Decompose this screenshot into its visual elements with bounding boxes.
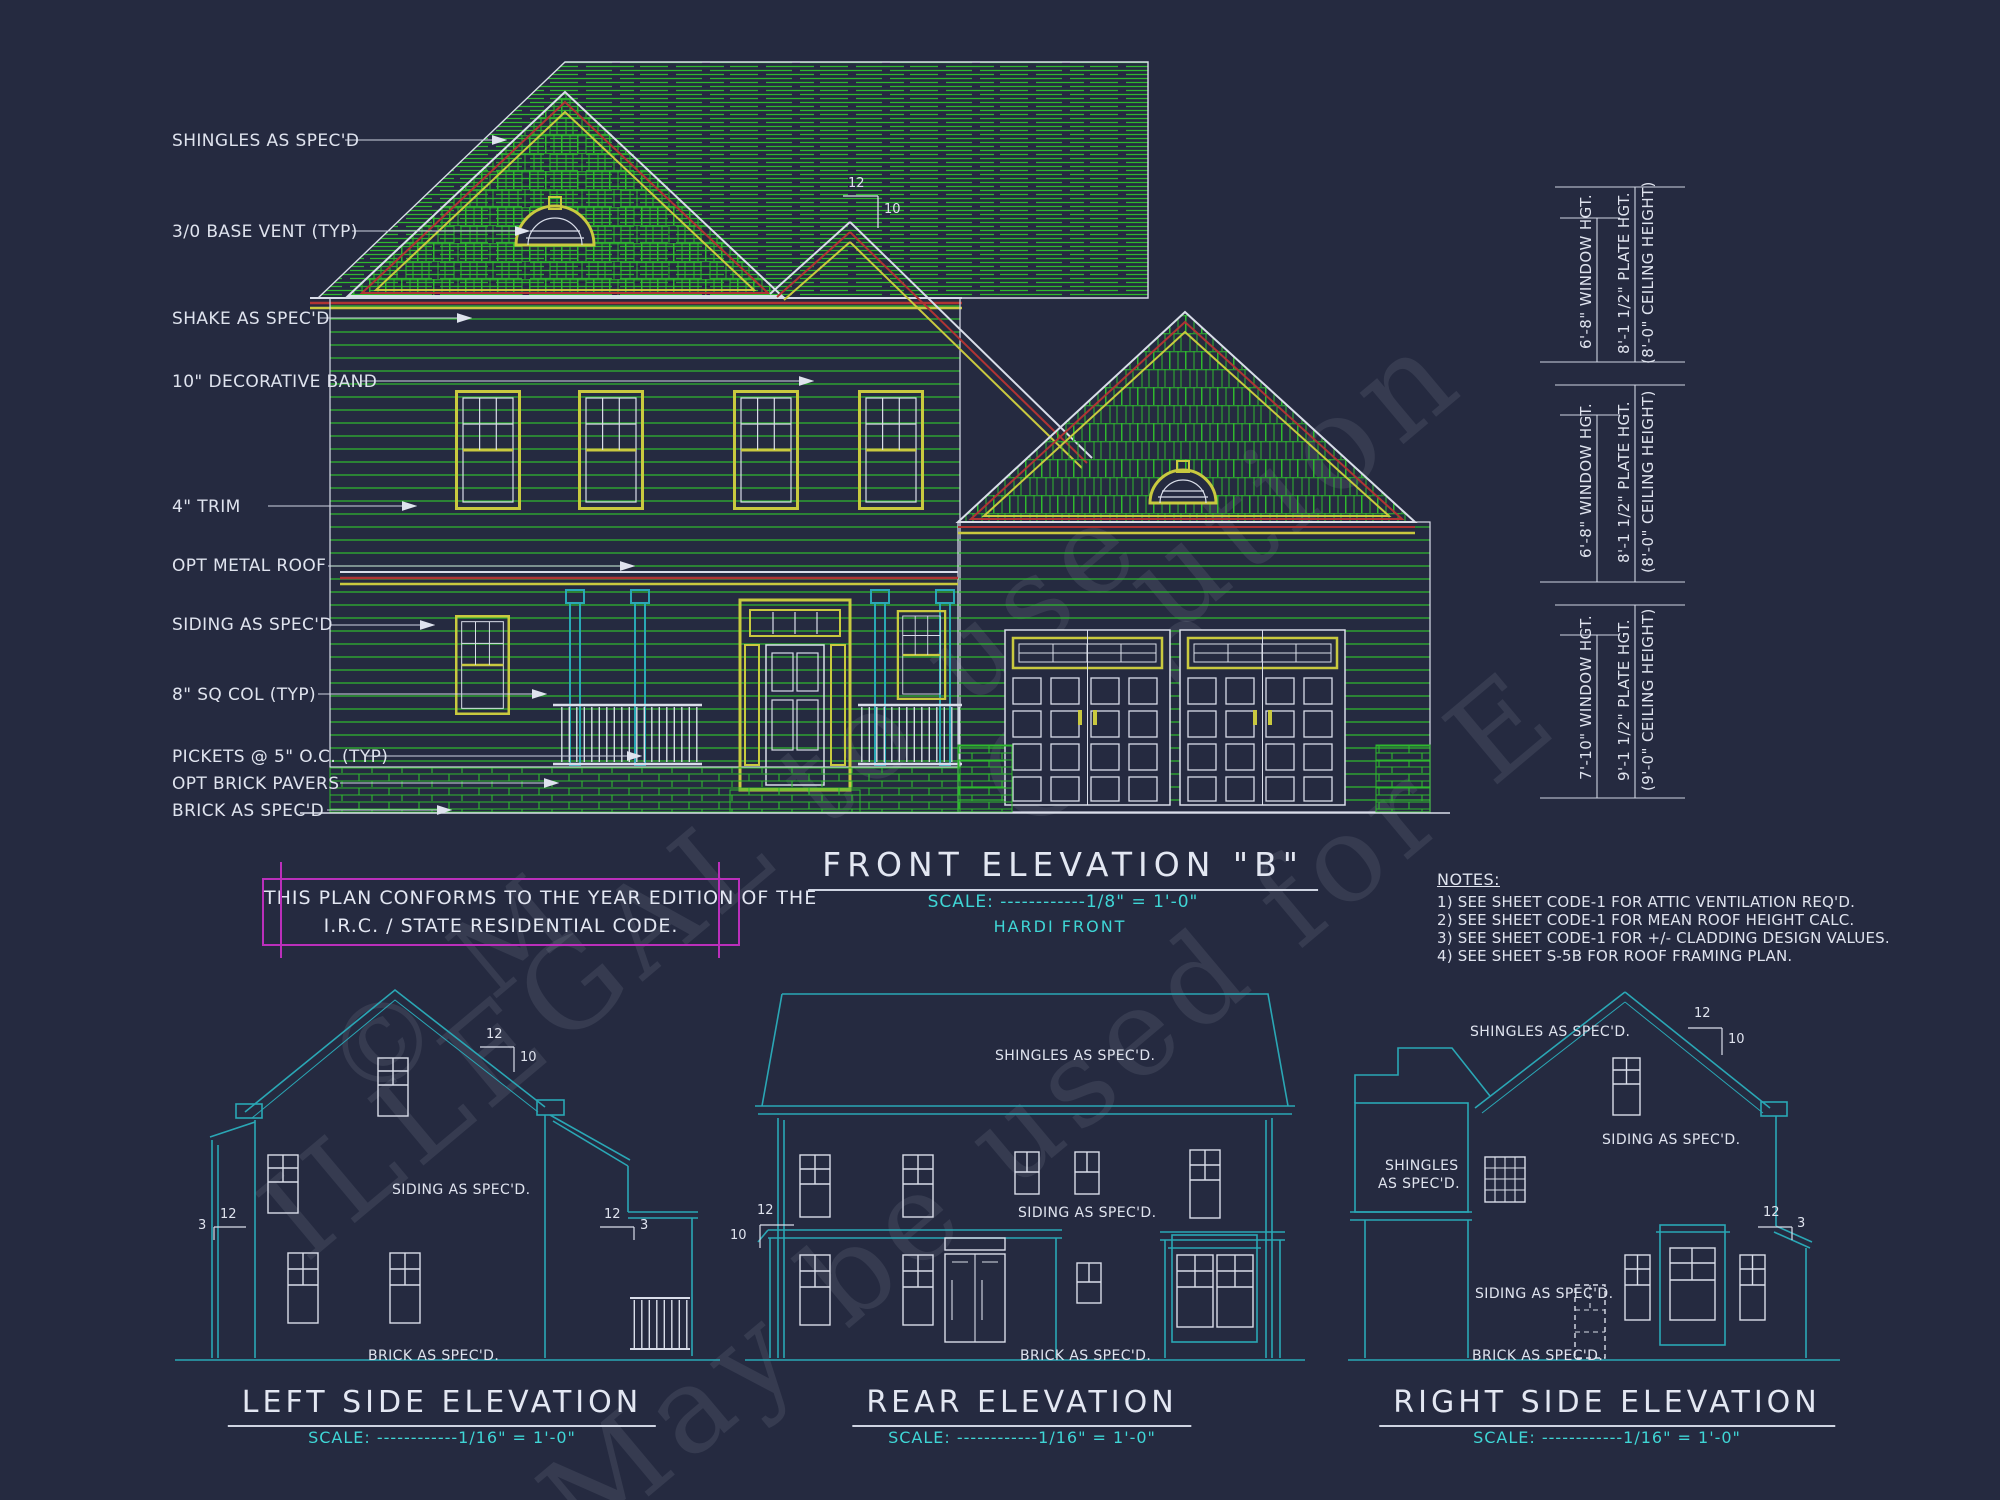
rear-elevation-scale: SCALE: ------------1/16" = 1'-0" bbox=[888, 1428, 1156, 1447]
pitch-rise: 12 bbox=[220, 1207, 237, 1222]
callout-siding: SIDING AS SPEC'D bbox=[172, 615, 333, 635]
pitch-run: 10 bbox=[520, 1050, 537, 1065]
pitch-rise: 12 bbox=[848, 176, 865, 191]
pitch-run: 10 bbox=[730, 1228, 747, 1243]
dim-plate-hgt: 9'-1 1/2" PLATE HGT. bbox=[1615, 619, 1633, 781]
callout-sq-col: 8" SQ COL (TYP) bbox=[172, 685, 316, 705]
pitch-run: 3 bbox=[1797, 1216, 1805, 1231]
note-item: 2) SEE SHEET CODE-1 FOR MEAN ROOF HEIGHT… bbox=[1437, 911, 1890, 929]
pitch-run: 3 bbox=[640, 1218, 648, 1233]
pitch-rise: 12 bbox=[486, 1027, 503, 1042]
right-siding-top-label: SIDING AS SPEC'D. bbox=[1602, 1132, 1740, 1148]
dim-ceiling-hgt: (9'-0" CEILING HEIGHT) bbox=[1639, 608, 1657, 791]
pitch-run: 10 bbox=[1728, 1032, 1745, 1047]
notes-block: NOTES: 1) SEE SHEET CODE-1 FOR ATTIC VEN… bbox=[1437, 870, 1890, 965]
note-item: 4) SEE SHEET S-5B FOR ROOF FRAMING PLAN. bbox=[1437, 947, 1890, 965]
pitch-rise: 12 bbox=[1694, 1006, 1711, 1021]
left-elevation-title: LEFT SIDE ELEVATION bbox=[228, 1385, 656, 1427]
left-elevation-scale: SCALE: ------------1/16" = 1'-0" bbox=[308, 1428, 576, 1447]
pitch-run: 10 bbox=[884, 202, 901, 217]
right-shingles-top-label: SHINGLES AS SPEC'D. bbox=[1470, 1024, 1630, 1040]
front-elevation-scale: SCALE: ------------1/8" = 1'-0" bbox=[928, 892, 1199, 912]
pitch-rise: 12 bbox=[1763, 1205, 1780, 1220]
code-conformance-box: THIS PLAN CONFORMS TO THE YEAR EDITION O… bbox=[262, 878, 740, 946]
callout-shake: SHAKE AS SPEC'D bbox=[172, 309, 330, 329]
right-brick-label: BRICK AS SPEC'D. bbox=[1472, 1348, 1603, 1364]
left-brick-label: BRICK AS SPEC'D. bbox=[368, 1348, 499, 1364]
callout-shingles: SHINGLES AS SPEC'D bbox=[172, 131, 359, 151]
note-item: 1) SEE SHEET CODE-1 FOR ATTIC VENTILATIO… bbox=[1437, 893, 1890, 911]
rear-shingles-label: SHINGLES AS SPEC'D. bbox=[995, 1048, 1155, 1064]
right-siding-bottom-label: SIDING AS SPEC'D. bbox=[1475, 1286, 1613, 1302]
right-shingles-left-label2: AS SPEC'D. bbox=[1378, 1176, 1460, 1192]
callout-base-vent: 3/0 BASE VENT (TYP) bbox=[172, 222, 358, 242]
rear-siding-label: SIDING AS SPEC'D. bbox=[1018, 1205, 1156, 1221]
pitch-rise: 12 bbox=[604, 1207, 621, 1222]
left-side-elevation-drawing bbox=[160, 980, 740, 1375]
dim-ceiling-hgt: (8'-0" CEILING HEIGHT) bbox=[1639, 181, 1657, 364]
callout-decorative-band: 10" DECORATIVE BAND bbox=[172, 372, 377, 392]
notes-heading: NOTES: bbox=[1437, 870, 1890, 889]
rear-elevation-title: REAR ELEVATION bbox=[852, 1385, 1191, 1427]
dim-plate-hgt: 8'-1 1/2" PLATE HGT. bbox=[1615, 401, 1633, 563]
dimension-lines bbox=[1500, 150, 1700, 870]
left-siding-label: SIDING AS SPEC'D. bbox=[392, 1182, 530, 1198]
front-elevation-subtitle: HARDI FRONT bbox=[994, 917, 1127, 936]
callout-brick: BRICK AS SPEC'D bbox=[172, 801, 324, 821]
callout-pickets: PICKETS @ 5" O.C. (TYP) bbox=[172, 747, 388, 767]
code-box-line2: I.R.C. / STATE RESIDENTIAL CODE. bbox=[264, 915, 738, 937]
dim-plate-hgt: 8'-1 1/2" PLATE HGT. bbox=[1615, 192, 1633, 354]
code-box-line1: THIS PLAN CONFORMS TO THE YEAR EDITION O… bbox=[264, 887, 738, 909]
code-box-tick bbox=[280, 862, 282, 958]
right-elevation-scale: SCALE: ------------1/16" = 1'-0" bbox=[1473, 1428, 1741, 1447]
callout-brick-pavers: OPT BRICK PAVERS bbox=[172, 774, 339, 794]
note-item: 3) SEE SHEET CODE-1 FOR +/- CLADDING DES… bbox=[1437, 929, 1890, 947]
dim-window-hgt: 6'-8" WINDOW HGT. bbox=[1577, 194, 1595, 349]
right-elevation-title: RIGHT SIDE ELEVATION bbox=[1379, 1385, 1835, 1427]
rear-elevation-drawing bbox=[740, 980, 1310, 1375]
pitch-rise: 12 bbox=[757, 1203, 774, 1218]
front-elevation-title: FRONT ELEVATION "B" bbox=[808, 845, 1318, 891]
rear-brick-label: BRICK AS SPEC'D. bbox=[1020, 1348, 1151, 1364]
callout-trim: 4" TRIM bbox=[172, 497, 241, 517]
callout-opt-metal-roof: OPT METAL ROOF bbox=[172, 556, 326, 576]
dim-window-hgt: 6'-8" WINDOW HGT. bbox=[1577, 403, 1595, 558]
dim-ceiling-hgt: (8'-0" CEILING HEIGHT) bbox=[1639, 390, 1657, 573]
dim-window-hgt: 7'-10" WINDOW HGT. bbox=[1577, 615, 1595, 780]
right-shingles-left-label: SHINGLES bbox=[1385, 1158, 1459, 1174]
pitch-run: 3 bbox=[198, 1218, 206, 1233]
blueprint-sheet: © M ILLEGAL to use May be used for E uti… bbox=[0, 0, 2000, 1500]
code-box-tick bbox=[718, 862, 720, 958]
